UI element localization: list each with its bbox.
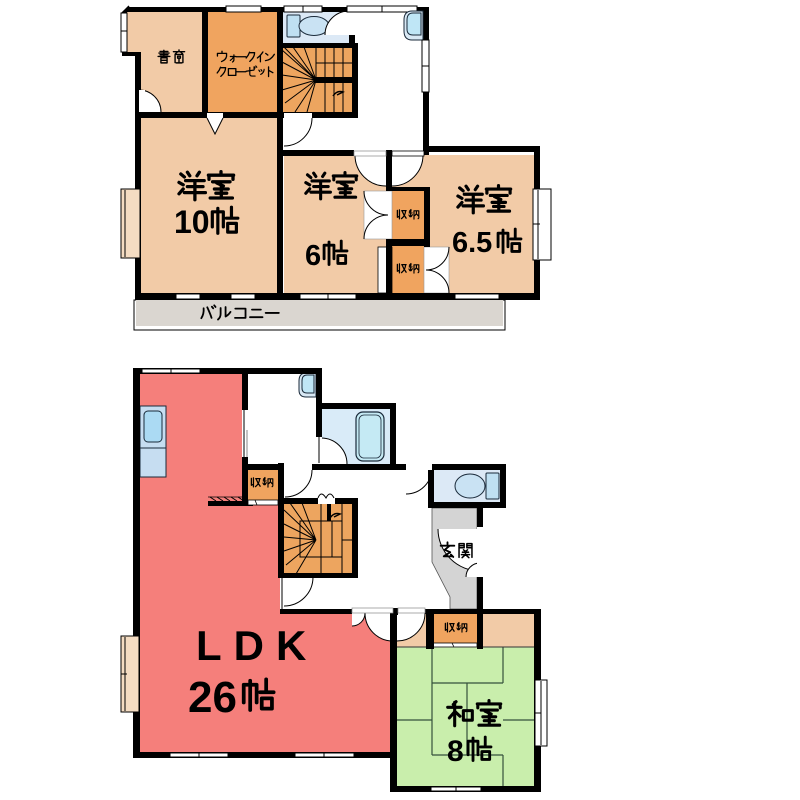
svg-text:26: 26 bbox=[188, 673, 237, 722]
svg-text:6: 6 bbox=[305, 240, 321, 272]
svg-text:6.5: 6.5 bbox=[452, 227, 492, 259]
svg-text:8: 8 bbox=[447, 735, 464, 768]
svg-text:10: 10 bbox=[174, 204, 210, 240]
svg-text:LDK: LDK bbox=[196, 622, 318, 669]
